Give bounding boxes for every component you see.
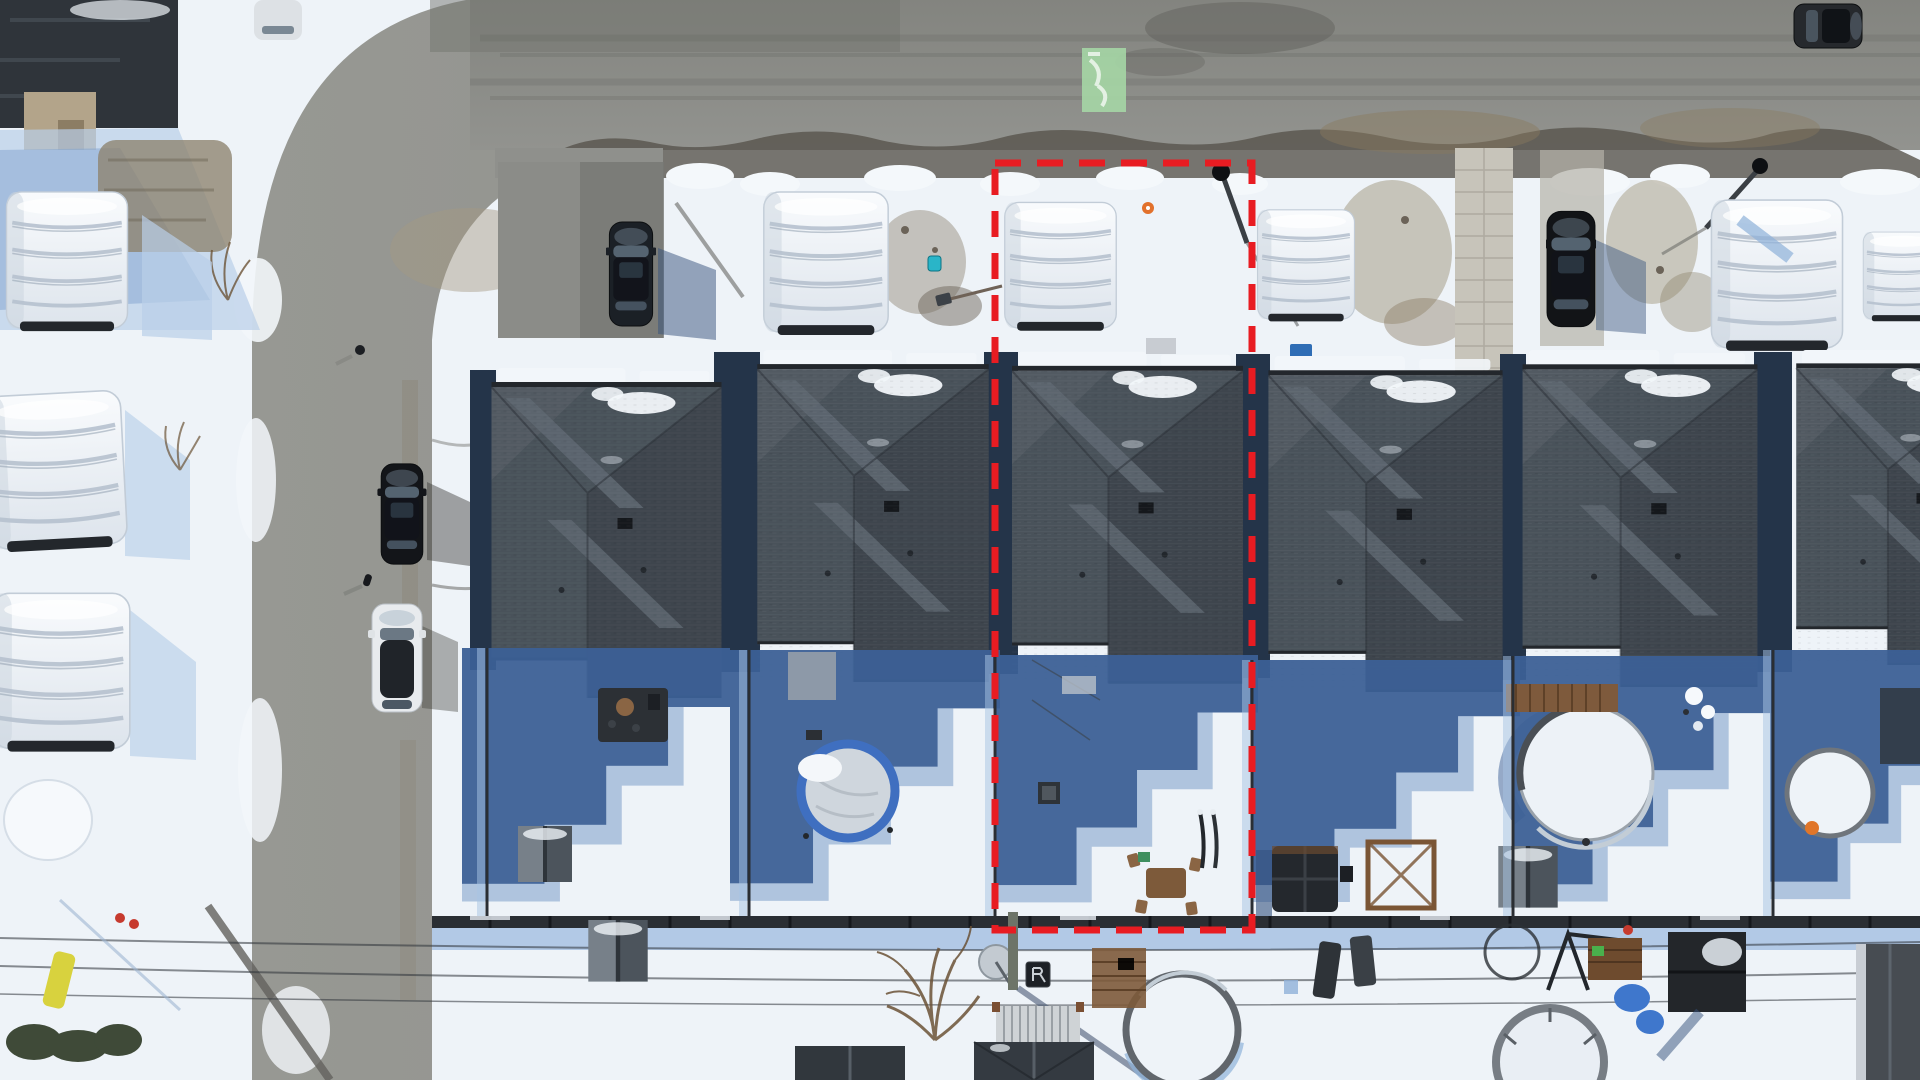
green-item (1592, 946, 1604, 956)
car-shelter-1 (764, 192, 888, 335)
house-roof-5 (1523, 350, 1758, 687)
orange-ball (1805, 821, 1819, 835)
red-cap-1 (115, 913, 125, 923)
house-row (492, 350, 1920, 698)
red-cap-2 (129, 919, 139, 929)
partial-roof-bottom-left (795, 1046, 905, 1080)
patio-house-1 (598, 688, 668, 742)
bottom-right-roof (1856, 944, 1920, 1080)
car-shelter-3 (1258, 210, 1355, 322)
house-roof-2 (757, 350, 988, 682)
shed-1 (518, 826, 572, 882)
teal-toy (928, 256, 941, 271)
grill (1340, 866, 1353, 882)
front-step (1146, 338, 1176, 354)
hot-tub (1256, 846, 1338, 920)
car-shelter-5 (1863, 232, 1920, 321)
pool-yard-6 (1787, 750, 1873, 836)
deck-house-2 (788, 652, 836, 700)
aerial-photo (0, 0, 1920, 1080)
pool-deck (1506, 684, 1618, 712)
deck-items (1092, 948, 1146, 1008)
car-shelter-2 (1005, 202, 1116, 330)
car-top-right (1794, 4, 1862, 48)
scene-canvas (0, 0, 1920, 1080)
access-hatch (1026, 962, 1050, 987)
yard-6-dark-strip (1880, 688, 1920, 764)
house-roof-3 (1012, 352, 1243, 683)
left-shelter-1 (7, 192, 128, 331)
paver-driveway-right (1455, 148, 1513, 388)
left-shelter-3 (0, 593, 130, 751)
left-shelter-2 (0, 390, 128, 553)
green-box (1138, 852, 1150, 862)
car-shelter-4 (1711, 200, 1842, 351)
house-roof-6 (1796, 350, 1920, 665)
red-item (1623, 925, 1633, 935)
wet-asphalt-patch (1145, 2, 1335, 54)
house-roof-4 (1268, 356, 1502, 692)
bottom-pool-2 (1496, 1008, 1604, 1080)
road-marking-green (1082, 48, 1126, 112)
wood-box (1588, 938, 1642, 980)
shed-3 (588, 920, 647, 982)
